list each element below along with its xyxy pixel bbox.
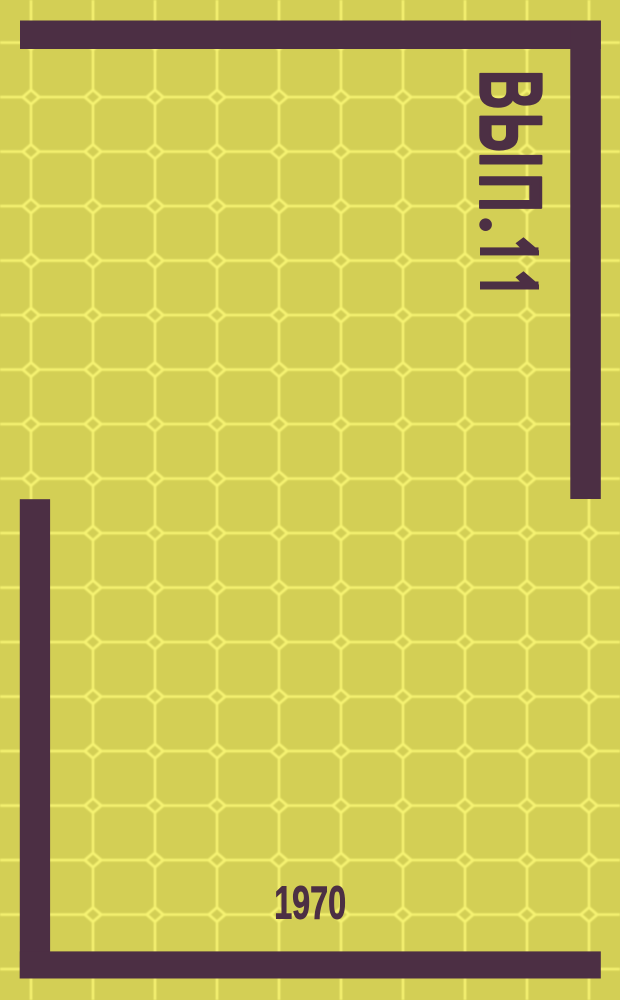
svg-text:П: П bbox=[462, 173, 561, 211]
svg-text:В: В bbox=[462, 70, 561, 110]
svg-text:1970: 1970 bbox=[274, 877, 346, 929]
svg-text:Ы: Ы bbox=[462, 113, 561, 168]
